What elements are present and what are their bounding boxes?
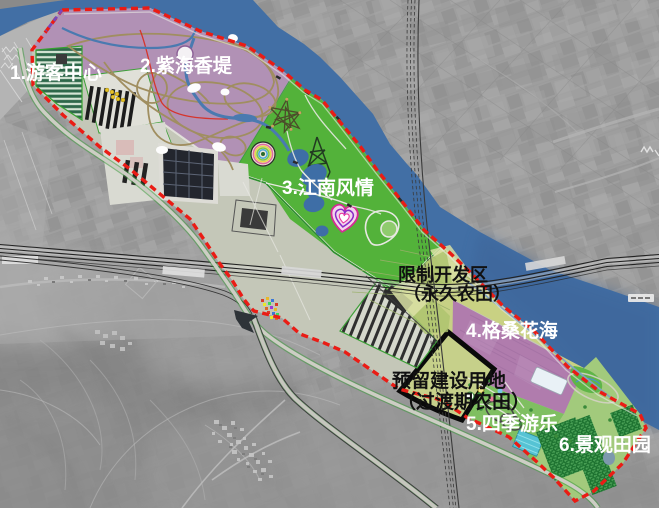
svg-text:（永久农田）: （永久农田） xyxy=(403,283,511,304)
svg-text:6.景观田园: 6.景观田园 xyxy=(559,434,651,456)
svg-text:（过渡期农田）: （过渡期农田） xyxy=(397,390,530,413)
svg-text:4.格桑花海: 4.格桑花海 xyxy=(466,319,558,342)
svg-text:2.紫海香堤: 2.紫海香堤 xyxy=(140,54,233,77)
svg-text:1.游客中心: 1.游客中心 xyxy=(10,61,102,84)
svg-text:预留建设用地: 预留建设用地 xyxy=(392,369,506,392)
svg-text:5.四季游乐: 5.四季游乐 xyxy=(466,412,558,435)
svg-text:3.江南风情: 3.江南风情 xyxy=(282,176,374,199)
svg-text:限制开发区: 限制开发区 xyxy=(398,264,488,285)
